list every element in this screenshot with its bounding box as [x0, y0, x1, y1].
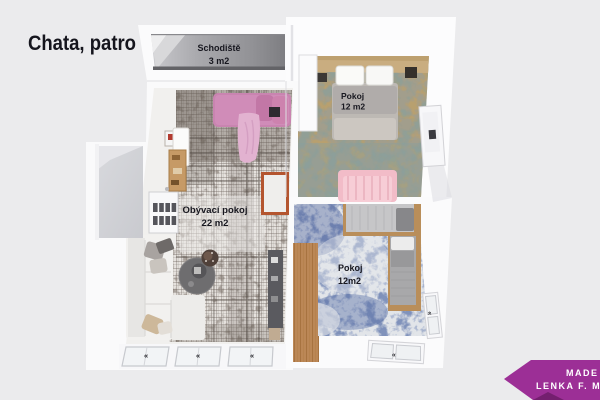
svg-text:MADE W: MADE W — [566, 368, 600, 378]
svg-text:Obývací pokoj: Obývací pokoj — [183, 205, 248, 216]
svg-text:«: « — [196, 351, 200, 360]
svg-text:«: « — [392, 352, 396, 359]
svg-text:LENKA F. MA: LENKA F. MA — [536, 381, 600, 391]
svg-text:12m2: 12m2 — [338, 276, 361, 286]
svg-text:Chata, patro: Chata, patro — [28, 31, 136, 55]
svg-text:Pokoj: Pokoj — [338, 263, 363, 273]
svg-text:Schodiště: Schodiště — [197, 43, 240, 53]
svg-text:«: « — [250, 351, 254, 360]
svg-text:«: « — [144, 351, 148, 360]
svg-text:22 m2: 22 m2 — [202, 218, 229, 229]
svg-text:3 m2: 3 m2 — [209, 56, 230, 66]
svg-text:Pokoj: Pokoj — [341, 91, 364, 101]
svg-text:12 m2: 12 m2 — [341, 102, 365, 112]
